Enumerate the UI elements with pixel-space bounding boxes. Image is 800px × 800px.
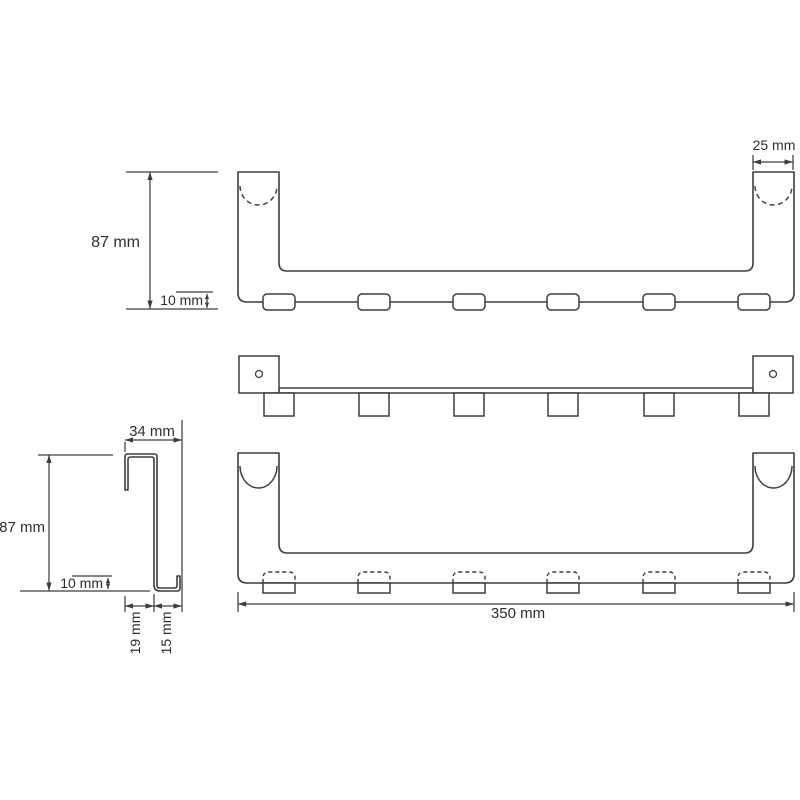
right-screw-hole: [770, 371, 777, 378]
plan-view: [239, 356, 793, 416]
side-lip-offset-label: 15 mm: [158, 612, 174, 655]
side-height-label: 87 mm: [0, 519, 45, 536]
hook-tip: [547, 583, 579, 593]
technical-drawing-page: 87 mm 10 mm 25 mm: [0, 0, 800, 800]
side-bottom-dimensions: 19 mm 15 mm: [125, 594, 182, 654]
left-screw-hole: [256, 371, 263, 378]
hook-tip: [738, 583, 770, 593]
drawing-svg: 87 mm 10 mm 25 mm: [0, 0, 800, 800]
front-height-dimension: 87 mm: [91, 172, 218, 309]
plan-rail: [279, 388, 753, 393]
side-channel-label: 19 mm: [127, 612, 143, 655]
front-height-label: 87 mm: [91, 234, 140, 251]
front-end-width-label: 25 mm: [753, 137, 796, 153]
hook: [643, 294, 675, 310]
side-depth-label: 34 mm: [129, 423, 175, 440]
hook-tab: [548, 393, 578, 416]
side-lip-dimension: 10 mm: [60, 575, 112, 591]
front-elevation-view: 87 mm 10 mm 25 mm: [91, 137, 795, 310]
rear-elevation-view: 350 mm: [238, 453, 794, 622]
hook-tip: [263, 583, 295, 593]
front-end-width-dimension: 25 mm: [753, 137, 796, 170]
front-hook-depth-label: 10 mm: [160, 292, 203, 308]
rear-frame-outline: [238, 453, 794, 583]
plan-hook-tabs: [264, 393, 769, 416]
side-lip-label: 10 mm: [60, 575, 103, 591]
hook: [738, 294, 770, 310]
hook-tip: [453, 583, 485, 593]
hook: [358, 294, 390, 310]
hook-tip: [643, 583, 675, 593]
hook-tab: [359, 393, 389, 416]
rear-width-label: 350 mm: [491, 605, 545, 622]
hook: [453, 294, 485, 310]
side-profile-outline: [125, 454, 180, 591]
front-frame-outline: [238, 172, 794, 302]
side-profile-view: 34 mm 87 mm 10 mm 19 mm 15 mm: [0, 420, 182, 654]
hook-tab: [644, 393, 674, 416]
hook: [263, 294, 295, 310]
hook-tip: [358, 583, 390, 593]
hook-tab: [739, 393, 769, 416]
hook-tab: [264, 393, 294, 416]
front-hook-depth-dimension: 10 mm: [160, 292, 213, 308]
hook: [547, 294, 579, 310]
rear-width-dimension: 350 mm: [238, 592, 794, 622]
hook-tab: [454, 393, 484, 416]
